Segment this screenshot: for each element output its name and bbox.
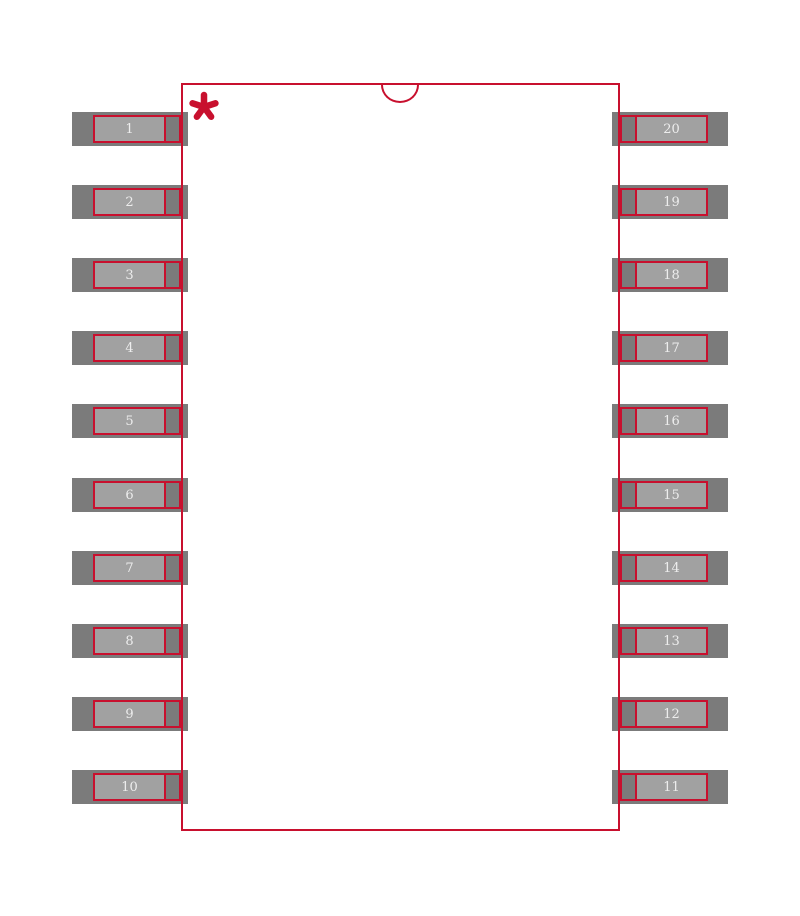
pin-lead-outline: 4 <box>93 334 181 362</box>
pin-number: 19 <box>663 196 680 209</box>
ic-body-outline <box>181 83 620 831</box>
pin-lead-outline: 13 <box>620 627 708 655</box>
pin-2: 2 <box>72 185 188 219</box>
pin-20: 20 <box>612 112 728 146</box>
pin1-asterisk-icon <box>189 91 219 123</box>
pin-lead-outline: 6 <box>93 481 181 509</box>
pin-12: 12 <box>612 697 728 731</box>
pin-lead-outline: 17 <box>620 334 708 362</box>
pin-17: 17 <box>612 331 728 365</box>
pin-number: 11 <box>663 781 680 794</box>
pin-lead: 5 <box>95 409 166 433</box>
footprint-canvas: 12345678910 20191817161514131211 <box>0 0 800 916</box>
pin-lead-outline: 12 <box>620 700 708 728</box>
pin-lead: 6 <box>95 483 166 507</box>
pin-lead-outline: 11 <box>620 773 708 801</box>
pin-number: 1 <box>125 123 133 136</box>
pin-lead: 9 <box>95 702 166 726</box>
pin-1: 1 <box>72 112 188 146</box>
pin-lead-outline: 9 <box>93 700 181 728</box>
pin-5: 5 <box>72 404 188 438</box>
pin-lead-outline: 5 <box>93 407 181 435</box>
pin-number: 15 <box>663 489 680 502</box>
pin-19: 19 <box>612 185 728 219</box>
pin-lead: 18 <box>635 263 706 287</box>
pin-number: 5 <box>125 415 133 428</box>
pin-4: 4 <box>72 331 188 365</box>
pin-lead-outline: 1 <box>93 115 181 143</box>
pin-lead-outline: 16 <box>620 407 708 435</box>
pin-10: 10 <box>72 770 188 804</box>
pin-lead-outline: 8 <box>93 627 181 655</box>
pin-number: 18 <box>663 269 680 282</box>
pin-9: 9 <box>72 697 188 731</box>
pin-lead-outline: 15 <box>620 481 708 509</box>
pin-lead: 8 <box>95 629 166 653</box>
pin-number: 9 <box>125 708 133 721</box>
pin-lead: 3 <box>95 263 166 287</box>
orientation-notch-icon <box>381 85 419 103</box>
pin-number: 2 <box>125 196 133 209</box>
pin-lead: 4 <box>95 336 166 360</box>
pin-11: 11 <box>612 770 728 804</box>
pin-number: 12 <box>663 708 680 721</box>
pin-lead-outline: 19 <box>620 188 708 216</box>
pin-lead-outline: 10 <box>93 773 181 801</box>
pin-lead-outline: 7 <box>93 554 181 582</box>
pin-lead: 15 <box>635 483 706 507</box>
pin-7: 7 <box>72 551 188 585</box>
pin-lead-outline: 18 <box>620 261 708 289</box>
pin-8: 8 <box>72 624 188 658</box>
pin-lead-outline: 3 <box>93 261 181 289</box>
pin-lead: 12 <box>635 702 706 726</box>
pin-lead: 19 <box>635 190 706 214</box>
pin-lead: 20 <box>635 117 706 141</box>
pin-number: 8 <box>125 635 133 648</box>
pin-lead: 10 <box>95 775 166 799</box>
pin-lead: 7 <box>95 556 166 580</box>
pin-lead: 11 <box>635 775 706 799</box>
pin-15: 15 <box>612 478 728 512</box>
pin-14: 14 <box>612 551 728 585</box>
pin-lead: 1 <box>95 117 166 141</box>
pin-lead: 2 <box>95 190 166 214</box>
pin-6: 6 <box>72 478 188 512</box>
pin-lead: 16 <box>635 409 706 433</box>
pin-13: 13 <box>612 624 728 658</box>
pin-number: 6 <box>125 489 133 502</box>
pin-number: 16 <box>663 415 680 428</box>
pin-number: 17 <box>663 342 680 355</box>
pin-lead: 14 <box>635 556 706 580</box>
pin-number: 14 <box>663 562 680 575</box>
pin-lead-outline: 2 <box>93 188 181 216</box>
pin-lead: 13 <box>635 629 706 653</box>
pin-number: 10 <box>121 781 138 794</box>
pin-number: 3 <box>125 269 133 282</box>
pin-number: 20 <box>663 123 680 136</box>
pin-lead-outline: 20 <box>620 115 708 143</box>
pin-lead-outline: 14 <box>620 554 708 582</box>
pin-number: 4 <box>125 342 133 355</box>
pin-lead: 17 <box>635 336 706 360</box>
pin-number: 13 <box>663 635 680 648</box>
pin-16: 16 <box>612 404 728 438</box>
pin-number: 7 <box>125 562 133 575</box>
pin-3: 3 <box>72 258 188 292</box>
pin-18: 18 <box>612 258 728 292</box>
